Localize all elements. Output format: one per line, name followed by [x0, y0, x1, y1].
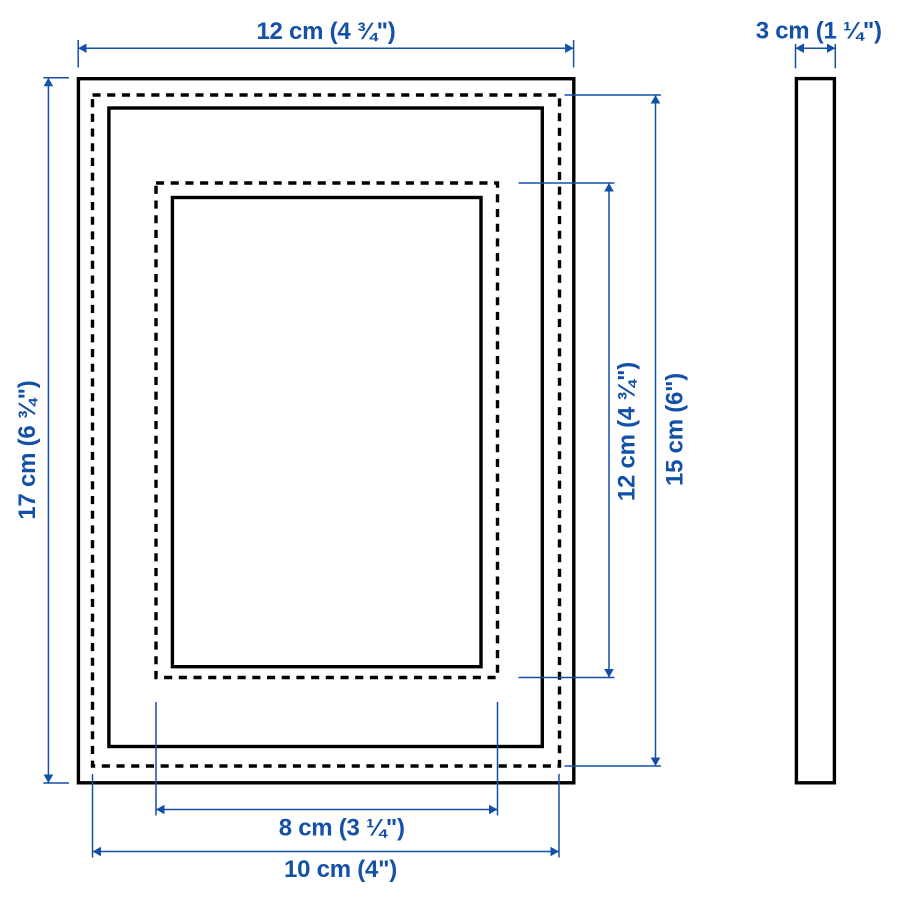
svg-text:8 cm (3 ¼"): 8 cm (3 ¼") — [279, 814, 405, 841]
svg-text:12 cm (4 ¾"): 12 cm (4 ¾") — [256, 18, 395, 45]
svg-text:3 cm (1 ¼"): 3 cm (1 ¼") — [756, 17, 882, 44]
svg-text:15 cm (6"): 15 cm (6") — [662, 373, 689, 486]
svg-text:17 cm (6 ¾"): 17 cm (6 ¾") — [14, 380, 41, 519]
svg-text:10 cm (4"): 10 cm (4") — [284, 856, 397, 883]
svg-text:12 cm (4 ¾"): 12 cm (4 ¾") — [614, 362, 641, 501]
